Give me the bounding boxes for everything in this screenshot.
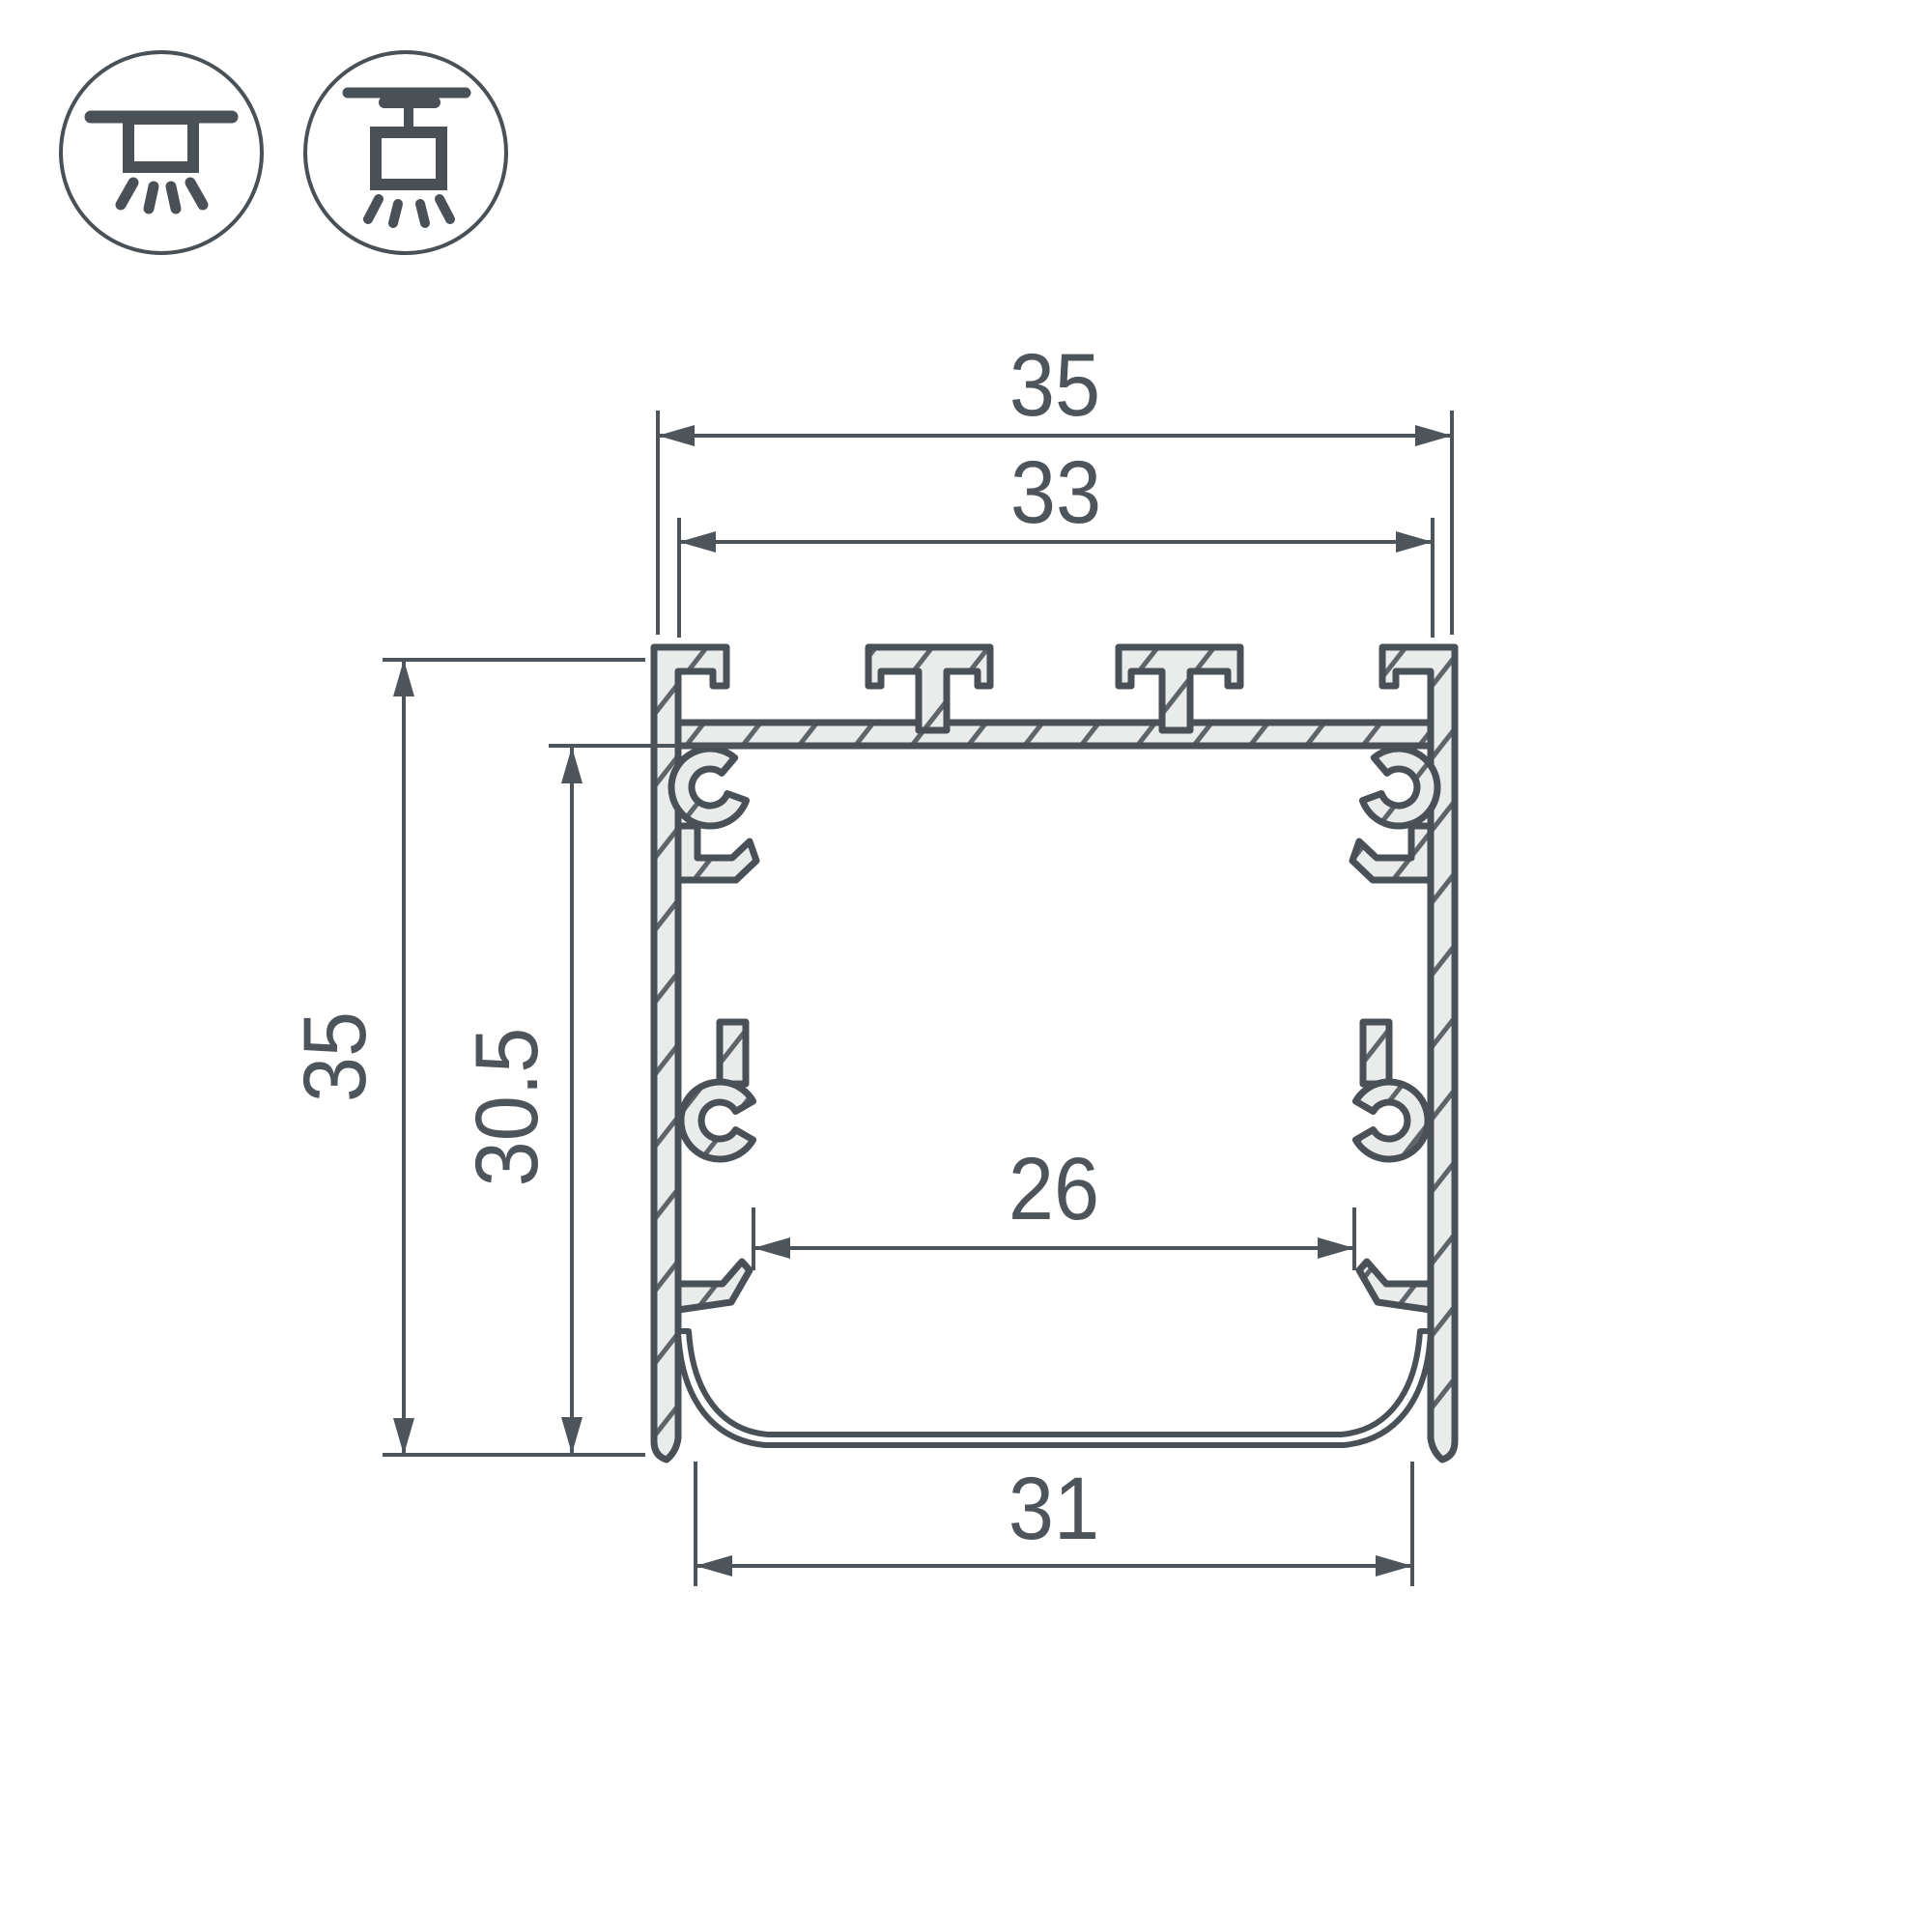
dim-label-inner-height: 30.5: [457, 1028, 556, 1187]
diffuser-hook: [678, 1262, 750, 1310]
arrowhead: [393, 1418, 414, 1455]
mid-fin: [720, 1022, 746, 1084]
arrowhead: [679, 531, 716, 553]
dim-inner-width: 26: [753, 1139, 1354, 1270]
mounting-icons: [61, 52, 506, 253]
arrowhead: [393, 660, 414, 696]
mid-fin: [1363, 1022, 1389, 1084]
pendant-mount-icon: [305, 52, 506, 253]
luminaire-body: [128, 119, 193, 167]
diffuser-hook: [1359, 1262, 1431, 1310]
arrowhead: [753, 1237, 790, 1259]
upper-screw-boss: [1362, 749, 1437, 826]
icon-circle: [61, 52, 262, 253]
diffuser-lens: [678, 1331, 1431, 1445]
mid-screw-boss: [1355, 1082, 1428, 1159]
profile-cross-section: [654, 647, 1455, 1460]
arrowhead: [1376, 1555, 1412, 1577]
t-slot-tab-right-middle: [1119, 647, 1240, 730]
upper-screw-boss: [671, 749, 747, 826]
dim-label-inner-width: 26: [1009, 1139, 1099, 1238]
arrowhead: [561, 1417, 582, 1454]
top-plate: [678, 723, 1431, 746]
dim-label-overall-height: 35: [285, 1011, 384, 1102]
upper-retainer-hook: [1352, 826, 1431, 880]
icon-circle: [305, 52, 506, 253]
mid-screw-boss: [681, 1082, 753, 1159]
dim-label-overall-width: 35: [1009, 335, 1100, 435]
upper-retainer-hook: [678, 826, 756, 880]
arrowhead: [1396, 531, 1433, 553]
dim-label-slot-span: 33: [1010, 442, 1101, 542]
dim-label-bottom-width: 31: [1009, 1459, 1099, 1558]
dimensions: 35 33 35 30.5: [285, 335, 1452, 1586]
surface-mount-icon: [61, 52, 262, 253]
arrowhead: [696, 1555, 732, 1577]
technical-drawing-page: 35 33 35 30.5: [0, 0, 1932, 1932]
arrowhead: [1318, 1237, 1354, 1259]
luminaire-body: [376, 132, 441, 185]
dim-bottom-width: 31: [696, 1459, 1412, 1586]
arrowhead: [658, 425, 695, 446]
arrowhead: [561, 747, 582, 783]
light-rays-icon: [368, 199, 450, 223]
arrowhead: [1415, 425, 1452, 446]
t-slot-tab-left-middle: [868, 647, 990, 730]
right-wall-assembly: [1352, 647, 1455, 1460]
light-rays-icon: [121, 183, 203, 209]
profile-drawing-canvas: 35 33 35 30.5: [0, 0, 1932, 1932]
left-wall-assembly: [654, 647, 756, 1460]
dim-slot-span: 33: [679, 442, 1433, 638]
